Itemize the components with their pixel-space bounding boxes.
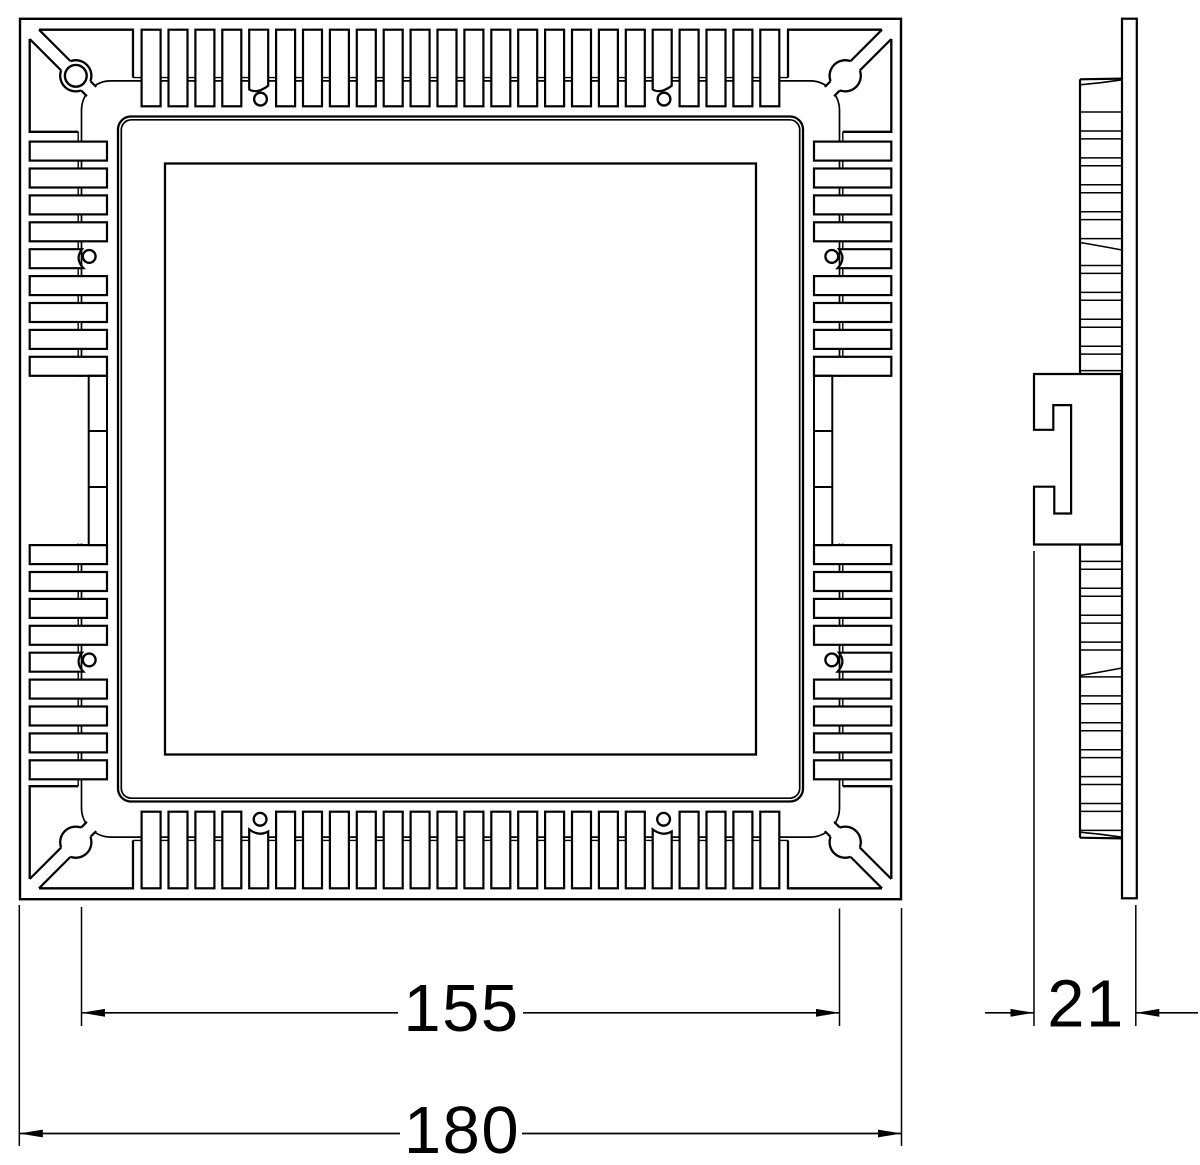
svg-text:155: 155	[403, 971, 519, 1046]
svg-text:180: 180	[404, 1093, 520, 1165]
svg-text:21: 21	[1047, 967, 1125, 1042]
